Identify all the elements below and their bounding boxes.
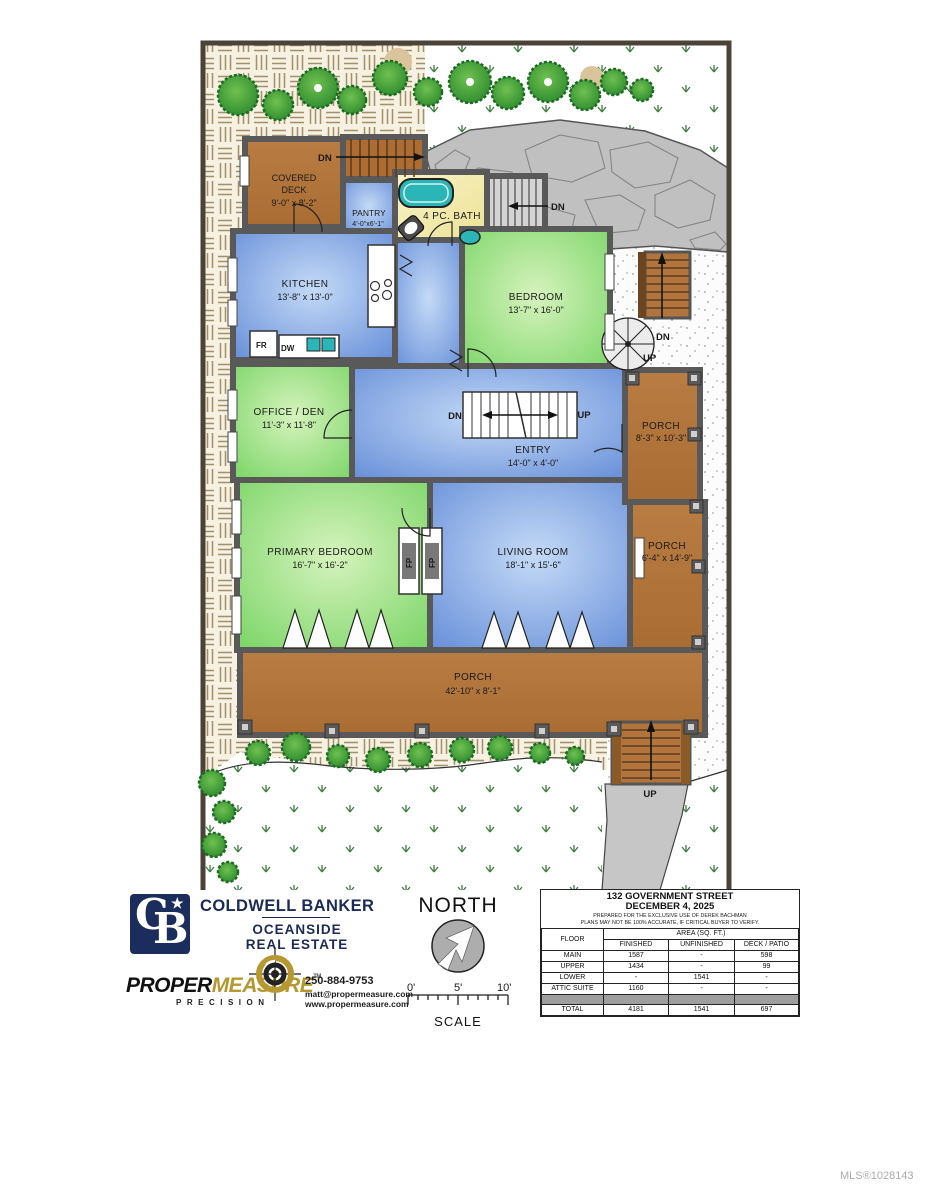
scale-tick-10: 10' xyxy=(497,982,511,994)
disclaimer-note: PLANS MAY NOT BE 100% ACCURATE, IF CRITI… xyxy=(541,920,799,927)
scale-label: SCALE xyxy=(399,1014,517,1029)
ext-stair-dn: DN xyxy=(656,332,670,343)
separator-cell xyxy=(735,994,799,1004)
primary-label: PRIMARY BEDROOM xyxy=(267,547,373,558)
lawn-bottom xyxy=(204,752,602,890)
star-icon: ★ xyxy=(171,895,184,912)
floor-cell: LOWER xyxy=(542,972,604,983)
porch-side-label: PORCH xyxy=(648,541,686,552)
living-dims: 18'-1" x 15'-6" xyxy=(505,560,560,570)
area-cell: 1160 xyxy=(604,983,669,994)
entry-label: ENTRY xyxy=(515,445,551,456)
prepared-note: PREPARED FOR THE EXCLUSIVE USE OF DEREK … xyxy=(541,913,799,920)
porch-front-label: PORCH xyxy=(454,672,492,683)
area-cell: 4181 xyxy=(604,1004,669,1015)
area-cell: - xyxy=(669,950,735,961)
pantry-label: PANTRY xyxy=(352,208,386,218)
target-icon xyxy=(246,945,304,1003)
area-cell: 99 xyxy=(735,961,799,972)
website-url: www.propermeasure.com xyxy=(305,999,413,1010)
porch-upper-dims: 8'-3" x 10'-3" xyxy=(636,433,686,443)
area-cell: - xyxy=(735,983,799,994)
floor-plan-sheet: COVERED DECK 9'-0" x 8'-2" PANTRY 4'-0"x… xyxy=(0,0,927,1200)
scale-tick-5: 5' xyxy=(454,982,462,994)
table-row: MAIN 1587 - 598 xyxy=(542,950,799,961)
total-row: TOTAL 4181 1541 697 xyxy=(542,1004,799,1015)
pantry-dims: 4'-0"x6'-1" xyxy=(352,221,384,228)
front-stair-up: UP xyxy=(643,789,657,800)
floor-cell: UPPER xyxy=(542,961,604,972)
area-cell: - xyxy=(669,983,735,994)
separator-row xyxy=(542,994,799,1004)
area-cell: 598 xyxy=(735,950,799,961)
col-area: AREA (SQ. FT.) xyxy=(604,928,799,939)
floor-cell: MAIN xyxy=(542,950,604,961)
col-finished: FINISHED xyxy=(604,939,669,950)
scale-bar: 0' 5' 10' xyxy=(399,981,517,1011)
floor-cell: ATTIC SUITE xyxy=(542,983,604,994)
floor-cell: TOTAL xyxy=(542,1004,604,1015)
compass-block: NORTH 0' 5' 10' SCALE xyxy=(399,894,517,1029)
table-row: ATTIC SUITE 1160 - - xyxy=(542,983,799,994)
deck-stair-dn: DN xyxy=(318,153,332,164)
table-row: LOWER - 1541 - xyxy=(542,972,799,983)
area-cell: 1541 xyxy=(669,972,735,983)
propermeasure-word1: PROPER xyxy=(126,974,212,997)
col-floor: FLOOR xyxy=(542,928,604,950)
covered-deck-label2: DECK xyxy=(281,185,306,195)
bath-stair-dn: DN xyxy=(551,202,565,213)
spiral-up: UP xyxy=(643,353,657,364)
dishwasher-label: DW xyxy=(281,344,295,353)
covered-deck-label: COVERED xyxy=(272,173,317,183)
fireplace-label2: FP xyxy=(428,557,437,568)
coldwell-banker-name: COLDWELL BANKER xyxy=(200,897,400,916)
mls-number: MLS®1028143 xyxy=(840,1170,914,1182)
covered-deck-dims: 9'-0" x 8'-2" xyxy=(271,198,316,208)
coldwell-banker-logo: C B ★ xyxy=(130,894,190,954)
col-deck-patio: DECK / PATIO xyxy=(735,939,799,950)
office-label: OFFICE / DEN xyxy=(254,407,325,418)
separator-cell xyxy=(604,994,669,1004)
phone-number: 250-884-9753 xyxy=(305,975,413,989)
area-table: 132 GOVERNMENT STREET DECEMBER 4, 2025 P… xyxy=(540,889,800,1017)
email-address: matt@propermeasure.com xyxy=(305,989,413,1000)
separator-cell xyxy=(669,994,735,1004)
primary-dims: 16'-7" x 16'-2" xyxy=(292,560,347,570)
area-sqft-table: FLOOR AREA (SQ. FT.) FINISHED UNFINISHED… xyxy=(541,928,799,1016)
area-cell: 1541 xyxy=(669,1004,735,1015)
toilet xyxy=(460,230,480,244)
living-label: LIVING ROOM xyxy=(497,547,568,558)
site-plan: COVERED DECK 9'-0" x 8'-2" PANTRY 4'-0"x… xyxy=(0,0,927,896)
north-label: NORTH xyxy=(399,894,517,918)
propermeasure-contact: 250-884-9753 matt@propermeasure.com www.… xyxy=(305,975,413,1010)
separator-cell xyxy=(542,994,604,1004)
area-cell: 697 xyxy=(735,1004,799,1015)
brokerage-line1: OCEANSIDE xyxy=(212,922,382,937)
kitchen-dims: 13'-8" x 13'-0" xyxy=(277,292,332,302)
porch-front-dims: 42'-10" x 8'-1" xyxy=(445,686,500,696)
col-unfinished: UNFINISHED xyxy=(669,939,735,950)
area-cell: - xyxy=(669,961,735,972)
fireplace-label: FP xyxy=(405,557,414,568)
north-compass-icon xyxy=(428,918,488,976)
bedroom-dims: 13'-7" x 16'-0" xyxy=(508,305,563,315)
bath-label: 4 PC. BATH xyxy=(423,211,481,222)
plan-date: DECEMBER 4, 2025 xyxy=(541,902,799,913)
kitchen-label: KITCHEN xyxy=(282,279,329,290)
bedroom-label: BEDROOM xyxy=(509,292,563,303)
porch-upper-label: PORCH xyxy=(642,421,680,432)
entry-stair-up: UP xyxy=(577,410,591,421)
entry-stair-dn: DN xyxy=(448,411,462,422)
porch-side-dims: 6'-4" x 14'-9" xyxy=(642,553,692,563)
scale-tick-0: 0' xyxy=(407,982,415,994)
area-cell: 1434 xyxy=(604,961,669,972)
area-cell: - xyxy=(735,972,799,983)
bathtub xyxy=(399,179,453,207)
area-cell: 1587 xyxy=(604,950,669,961)
area-cell: - xyxy=(604,972,669,983)
fridge-label: FR xyxy=(256,341,267,350)
entry-dims: 14'-0" x 4'-0" xyxy=(508,458,558,468)
table-row: UPPER 1434 - 99 xyxy=(542,961,799,972)
divider xyxy=(262,917,330,918)
office-dims: 11'-3" x 11'-8" xyxy=(262,420,316,430)
